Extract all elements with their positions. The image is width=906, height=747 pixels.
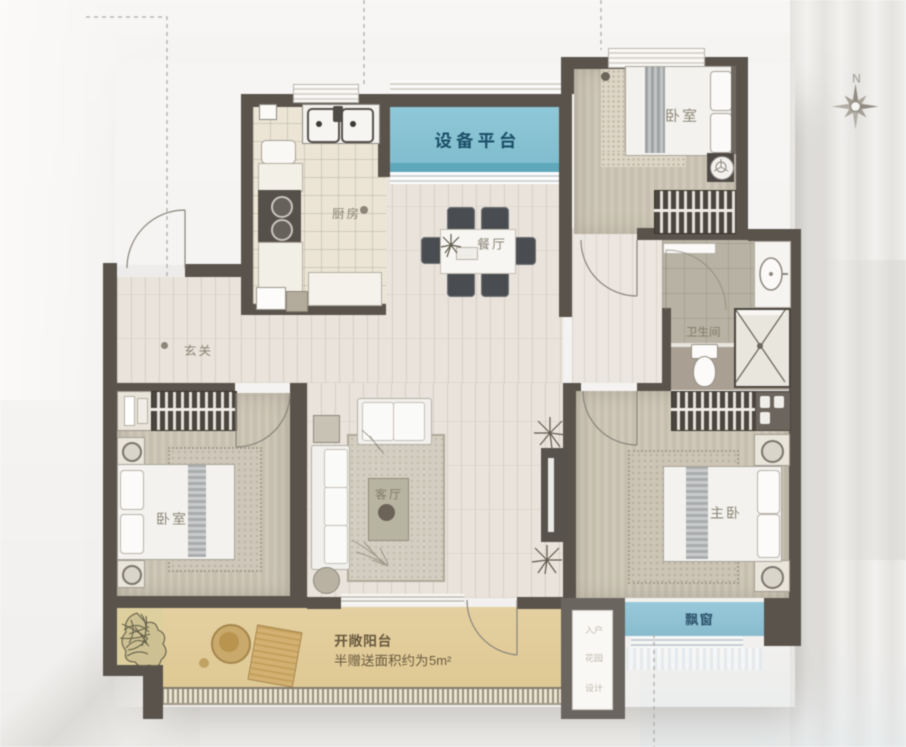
svg-text:N: N (852, 72, 861, 86)
